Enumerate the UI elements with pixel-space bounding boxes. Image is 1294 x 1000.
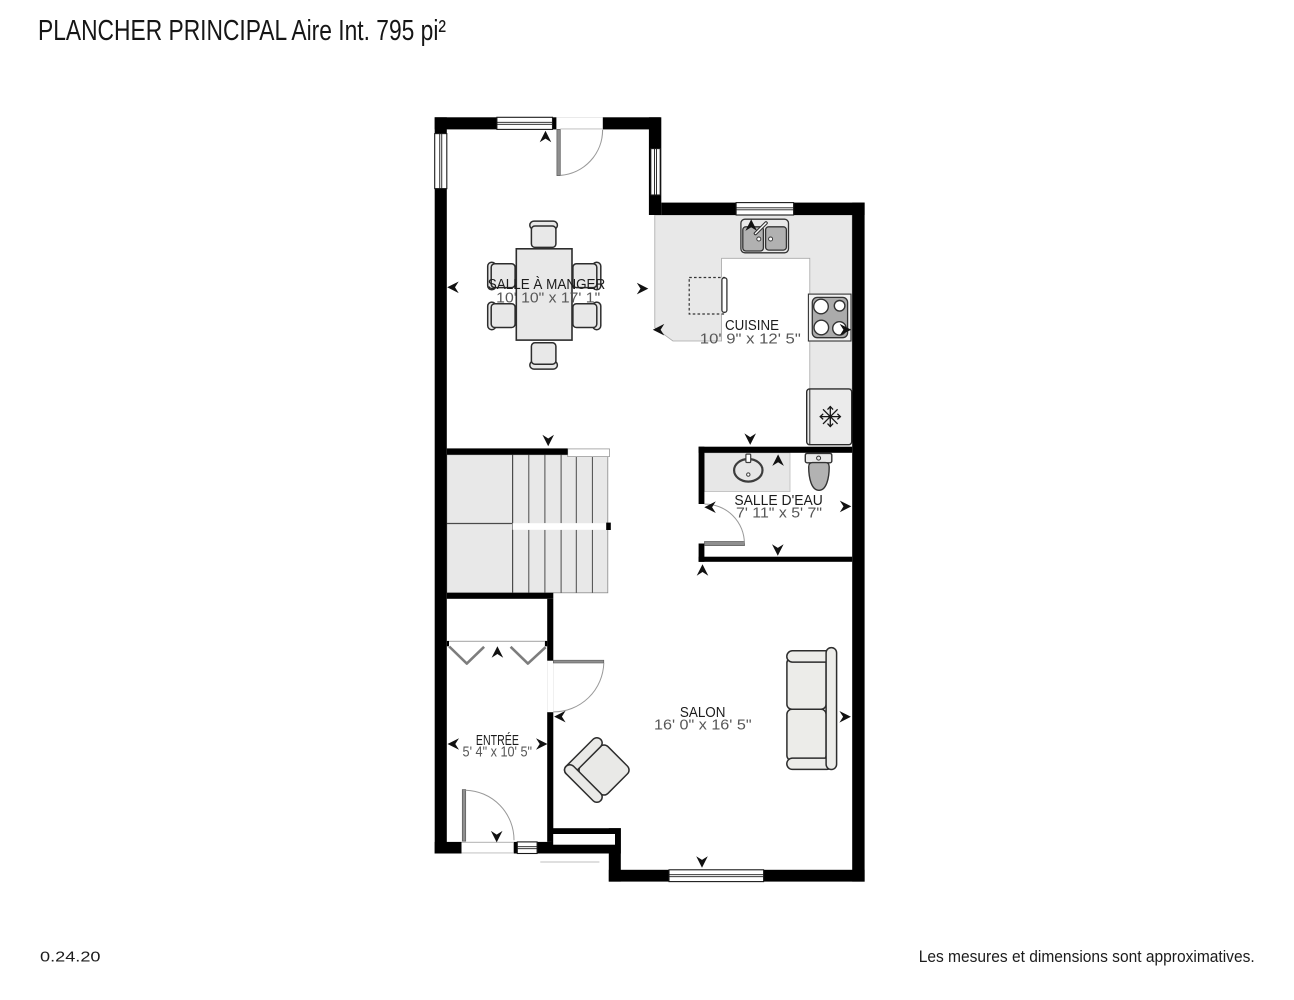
svg-text:Les mesures et dimensions sont: Les mesures et dimensions sont approxima… bbox=[919, 948, 1255, 966]
svg-text:5' 4" x 10' 5": 5' 4" x 10' 5" bbox=[463, 744, 533, 760]
svg-text:0.24.20: 0.24.20 bbox=[40, 948, 101, 965]
svg-text:16' 0" x 16' 5": 16' 0" x 16' 5" bbox=[654, 718, 752, 734]
svg-text:10' 9" x 12' 5": 10' 9" x 12' 5" bbox=[700, 332, 801, 348]
svg-text:7' 11" x 5' 7": 7' 11" x 5' 7" bbox=[736, 506, 822, 522]
svg-text:10' 10" x 17' 1": 10' 10" x 17' 1" bbox=[496, 291, 600, 307]
svg-text:PLANCHER PRINCIPAL Aire Int. 7: PLANCHER PRINCIPAL Aire Int. 795 pi² bbox=[38, 15, 446, 47]
